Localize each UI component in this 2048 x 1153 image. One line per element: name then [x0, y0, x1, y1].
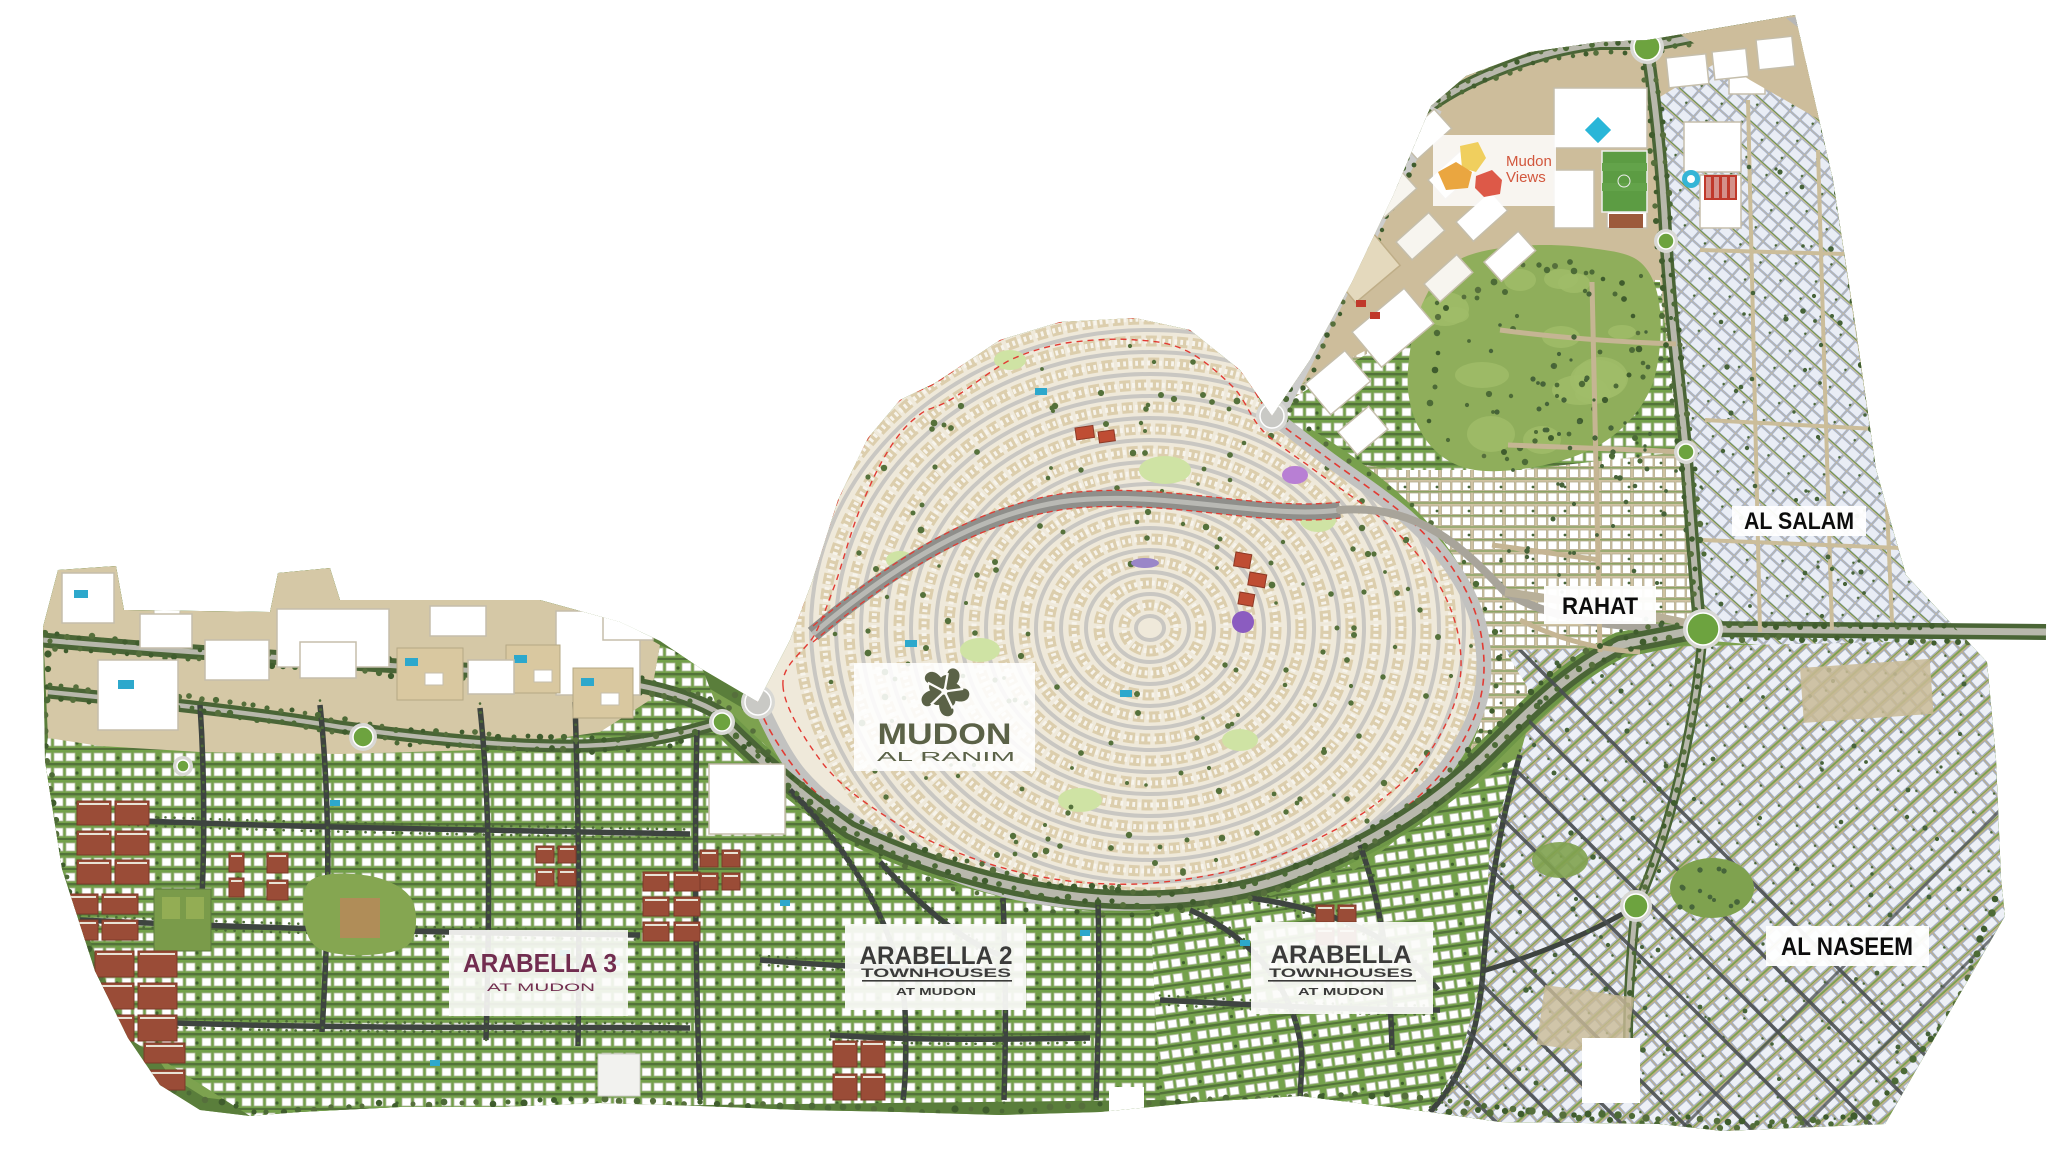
- svg-text:TOWNHOUSES: TOWNHOUSES: [861, 968, 1012, 980]
- svg-text:AT MUDON: AT MUDON: [1298, 987, 1384, 998]
- svg-text:AT MUDON: AT MUDON: [487, 982, 595, 994]
- svg-text:AT MUDON: AT MUDON: [896, 987, 976, 998]
- svg-text:RAHAT: RAHAT: [1562, 593, 1638, 620]
- svg-text:ARABELLA: ARABELLA: [1271, 941, 1412, 969]
- svg-text:MUDON: MUDON: [878, 718, 1012, 751]
- svg-text:AL NASEEM: AL NASEEM: [1781, 933, 1913, 961]
- svg-text:Mudon: Mudon: [1506, 153, 1552, 170]
- svg-text:TOWNHOUSES: TOWNHOUSES: [1269, 968, 1414, 980]
- svg-text:AL SALAM: AL SALAM: [1744, 508, 1854, 535]
- svg-text:AL RANIM: AL RANIM: [877, 749, 1015, 764]
- svg-text:Views: Views: [1506, 169, 1546, 186]
- svg-text:ARABELLA 3: ARABELLA 3: [463, 948, 617, 978]
- svg-text:ARABELLA 2: ARABELLA 2: [860, 942, 1013, 970]
